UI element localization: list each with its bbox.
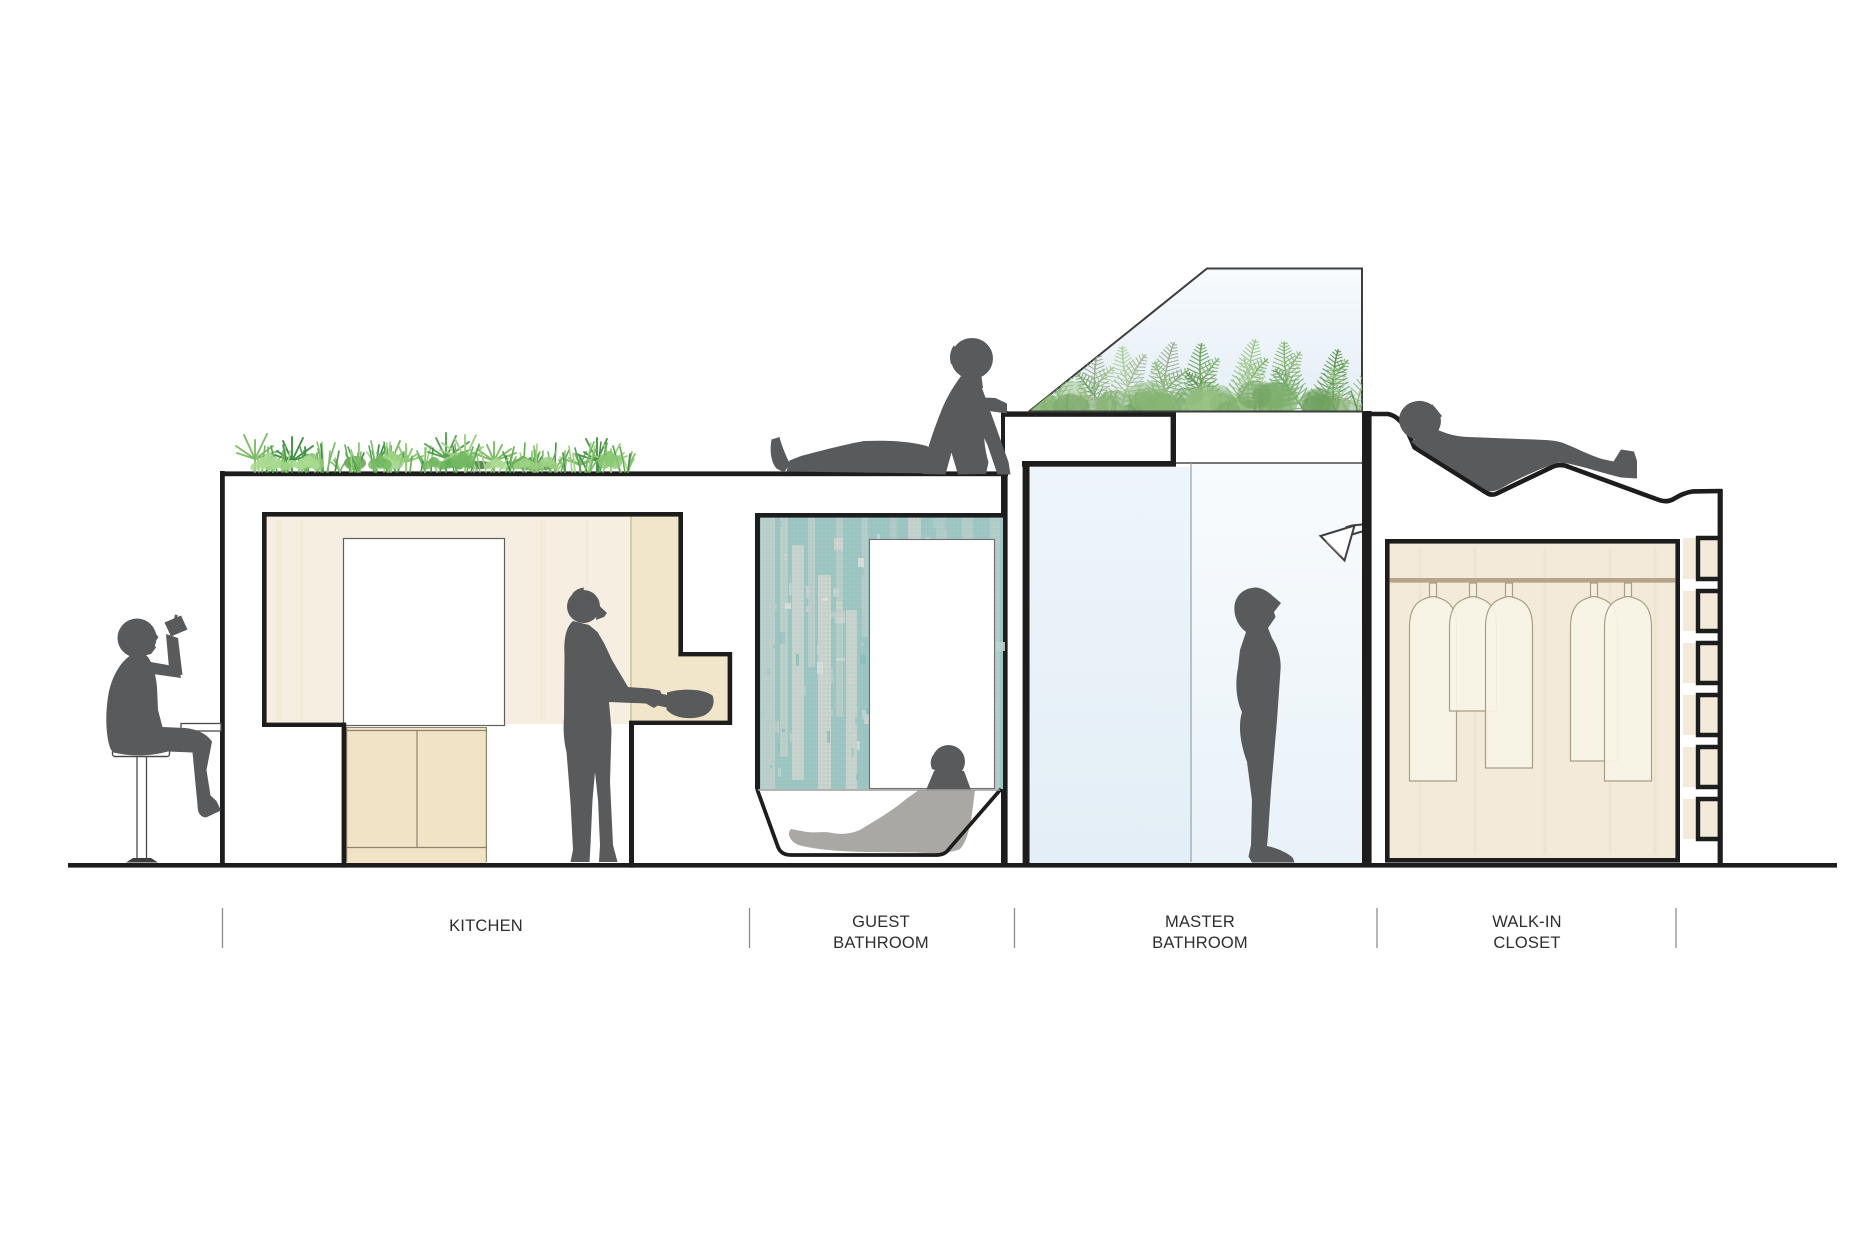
svg-text:WALK-IN: WALK-IN (1492, 913, 1562, 931)
svg-text:BATHROOM: BATHROOM (833, 934, 929, 952)
svg-text:GUEST: GUEST (852, 913, 910, 931)
svg-text:KITCHEN: KITCHEN (449, 917, 523, 935)
svg-text:BATHROOM: BATHROOM (1152, 934, 1248, 952)
svg-text:MASTER: MASTER (1165, 913, 1235, 931)
svg-text:CLOSET: CLOSET (1493, 934, 1560, 952)
